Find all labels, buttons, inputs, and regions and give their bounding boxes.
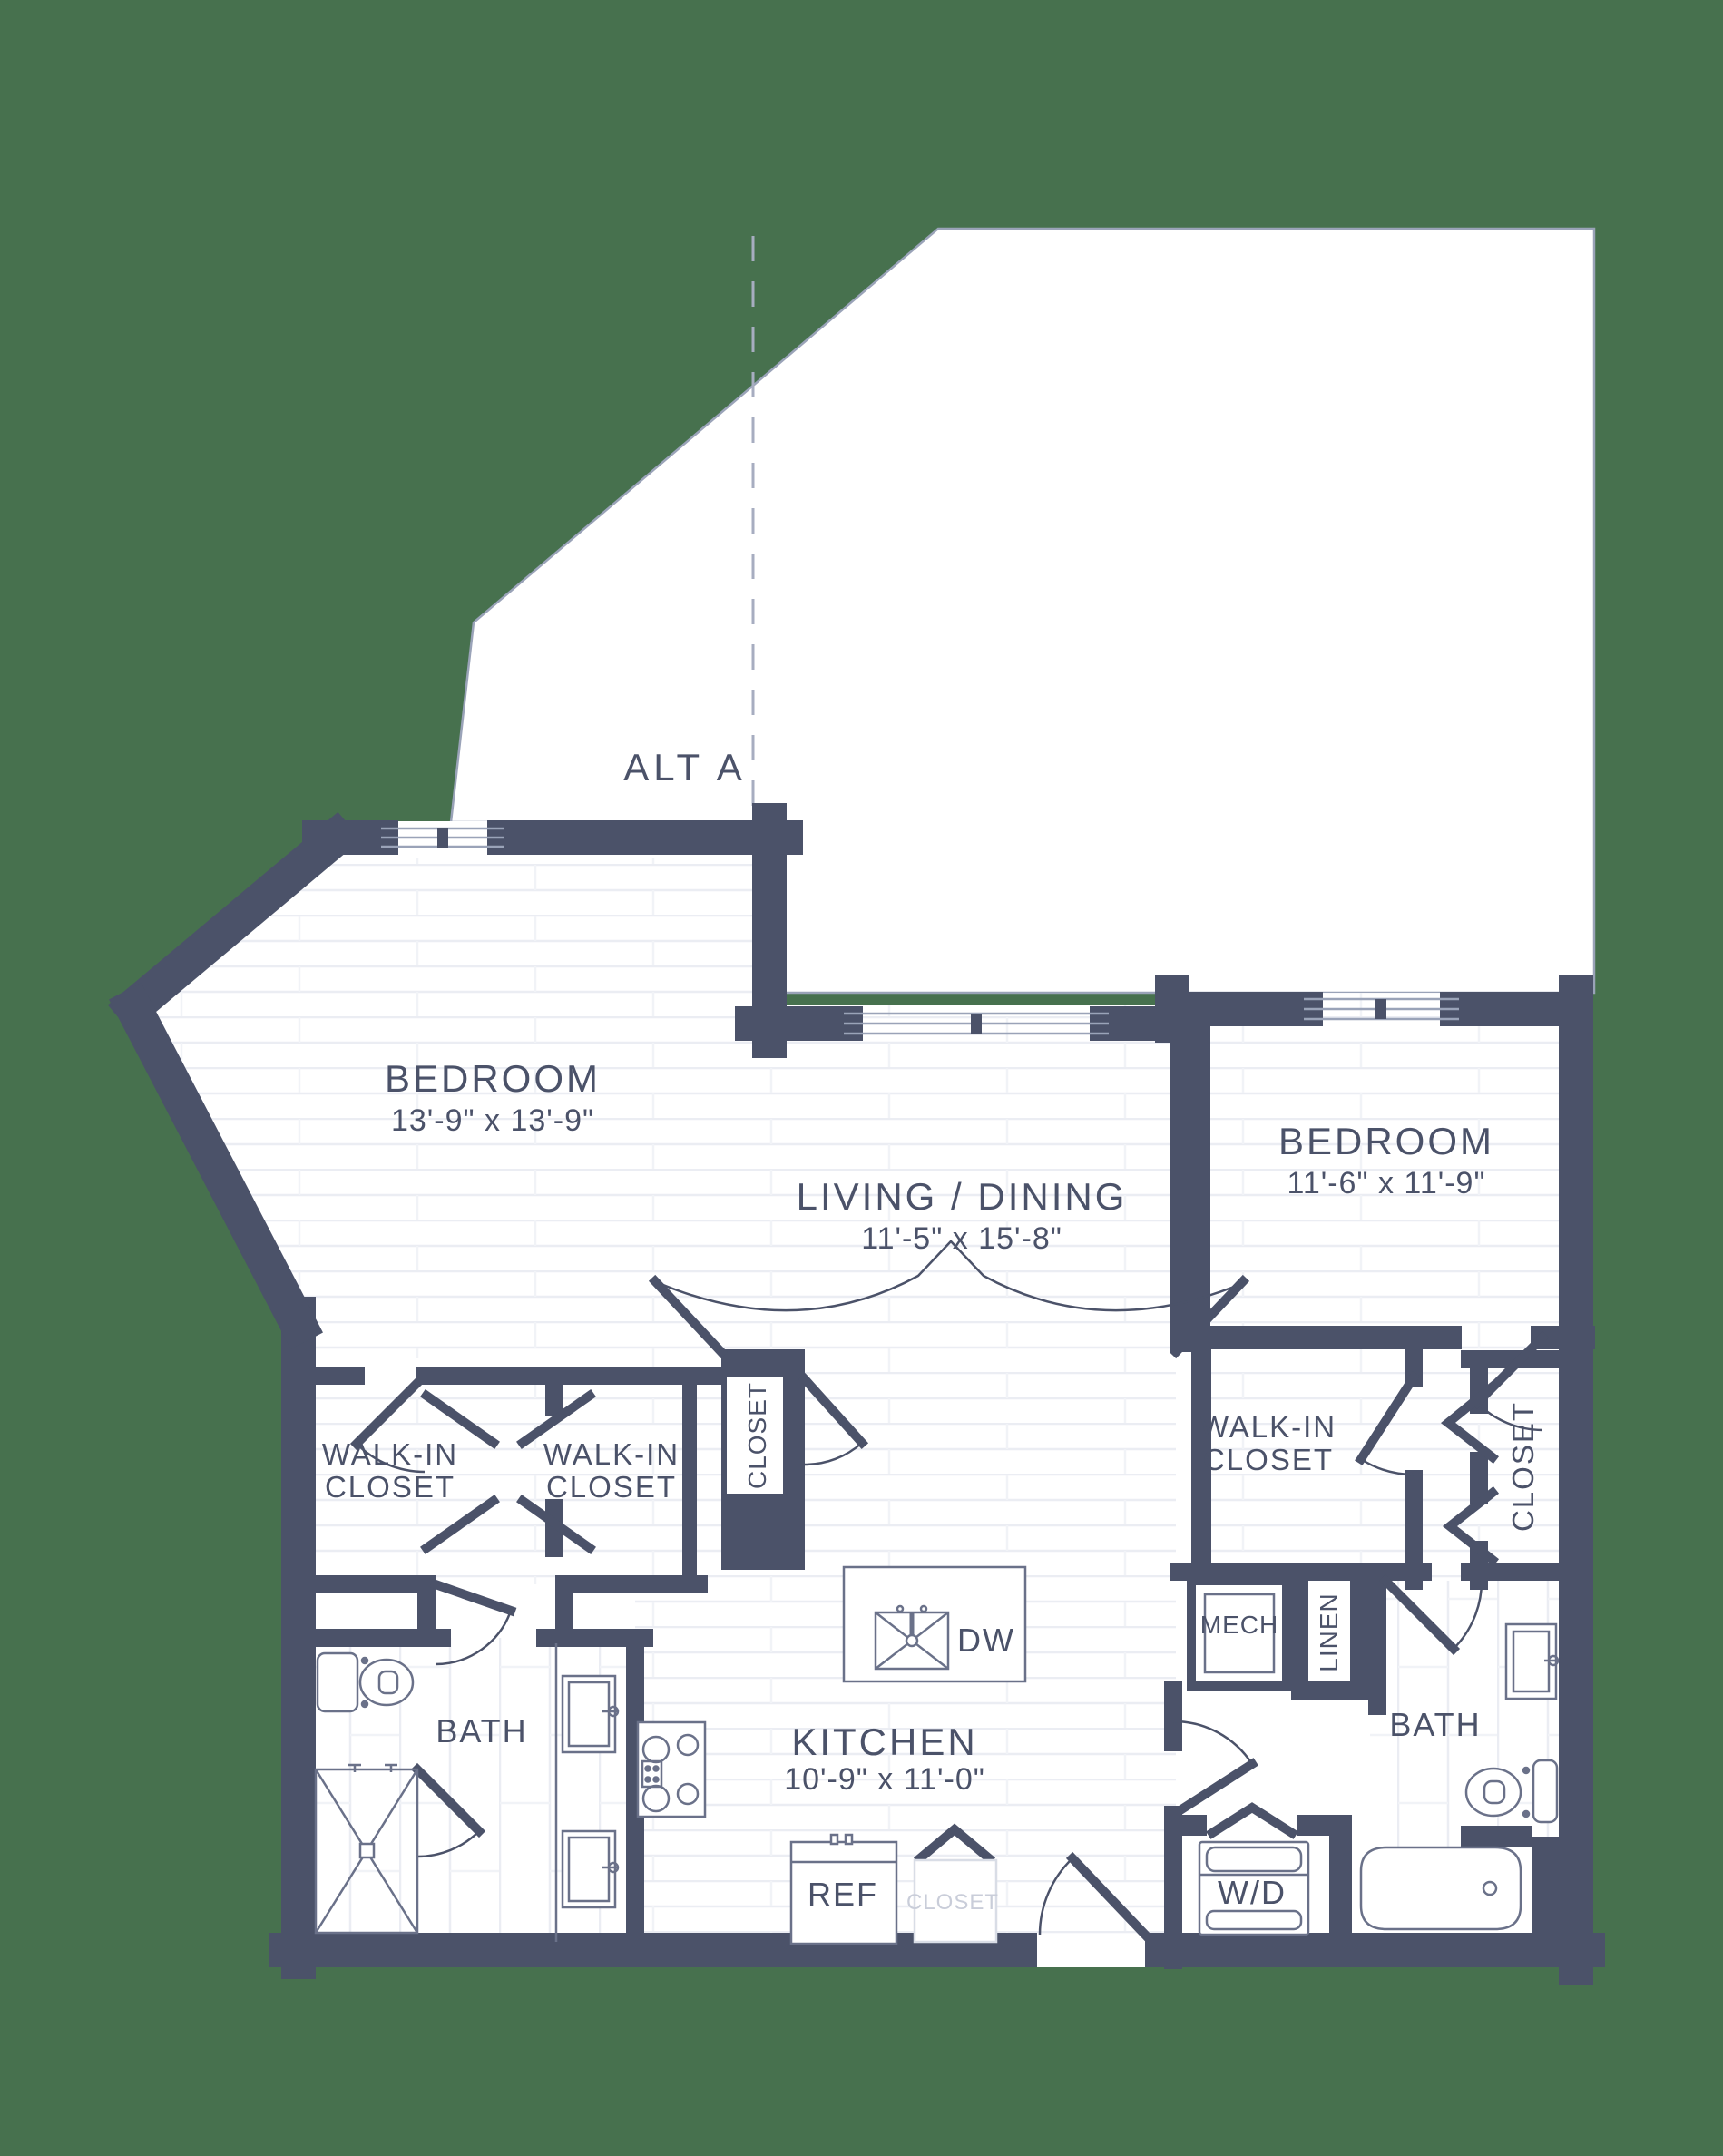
alt-area-label: ALT A xyxy=(623,746,747,789)
dishwasher-label: DW xyxy=(957,1622,1015,1659)
vanity-icon-bath2 xyxy=(1506,1624,1559,1699)
bedroom2-closet-label: CLOSET xyxy=(1506,1401,1540,1532)
living-label: LIVING / DINING xyxy=(797,1175,1128,1218)
living-dims: 11'-5" x 15'-8" xyxy=(861,1221,1062,1256)
bath1-label: BATH xyxy=(436,1712,527,1749)
refrigerator-label: REF xyxy=(808,1876,878,1913)
cooktop-icon xyxy=(638,1722,705,1817)
bedroom2-floor xyxy=(1191,993,1559,1338)
bedroom2-dims: 11'-6" x 11'-9" xyxy=(1287,1166,1485,1200)
toilet-icon-bath1 xyxy=(318,1653,413,1711)
kitchen-dims: 10'-9" x 11'-0" xyxy=(784,1762,985,1797)
walkin3-label-line1: WALK-IN xyxy=(1200,1410,1336,1444)
hall-closet-label: CLOSET xyxy=(743,1382,771,1489)
walkin2-label-line1: WALK-IN xyxy=(543,1437,680,1471)
entry-closet-label: CLOSET xyxy=(906,1890,999,1915)
mech-label: MECH xyxy=(1200,1611,1278,1639)
floor-plan-page: ALT A BEDROOM 13'-9" x 13'-9" LIVING / D… xyxy=(0,0,1723,2156)
washer-dryer-label: W/D xyxy=(1218,1874,1287,1911)
bath2-label: BATH xyxy=(1389,1706,1481,1743)
bedroom1-label: BEDROOM xyxy=(385,1057,601,1100)
bedroom2-label: BEDROOM xyxy=(1278,1120,1494,1162)
linen-label: LINEN xyxy=(1315,1592,1343,1671)
bedroom1-dims: 13'-9" x 13'-9" xyxy=(391,1103,594,1138)
floor-plan-svg: ALT A BEDROOM 13'-9" x 13'-9" LIVING / D… xyxy=(0,0,1723,2156)
kitchen-label: KITCHEN xyxy=(791,1720,977,1763)
walkin1-label-line2: CLOSET xyxy=(325,1470,455,1504)
walkin3-label-line2: CLOSET xyxy=(1203,1443,1334,1476)
bathtub-icon xyxy=(1361,1847,1521,1929)
walkin2-label-line2: CLOSET xyxy=(546,1470,677,1504)
walkin1-label-line1: WALK-IN xyxy=(322,1437,458,1471)
